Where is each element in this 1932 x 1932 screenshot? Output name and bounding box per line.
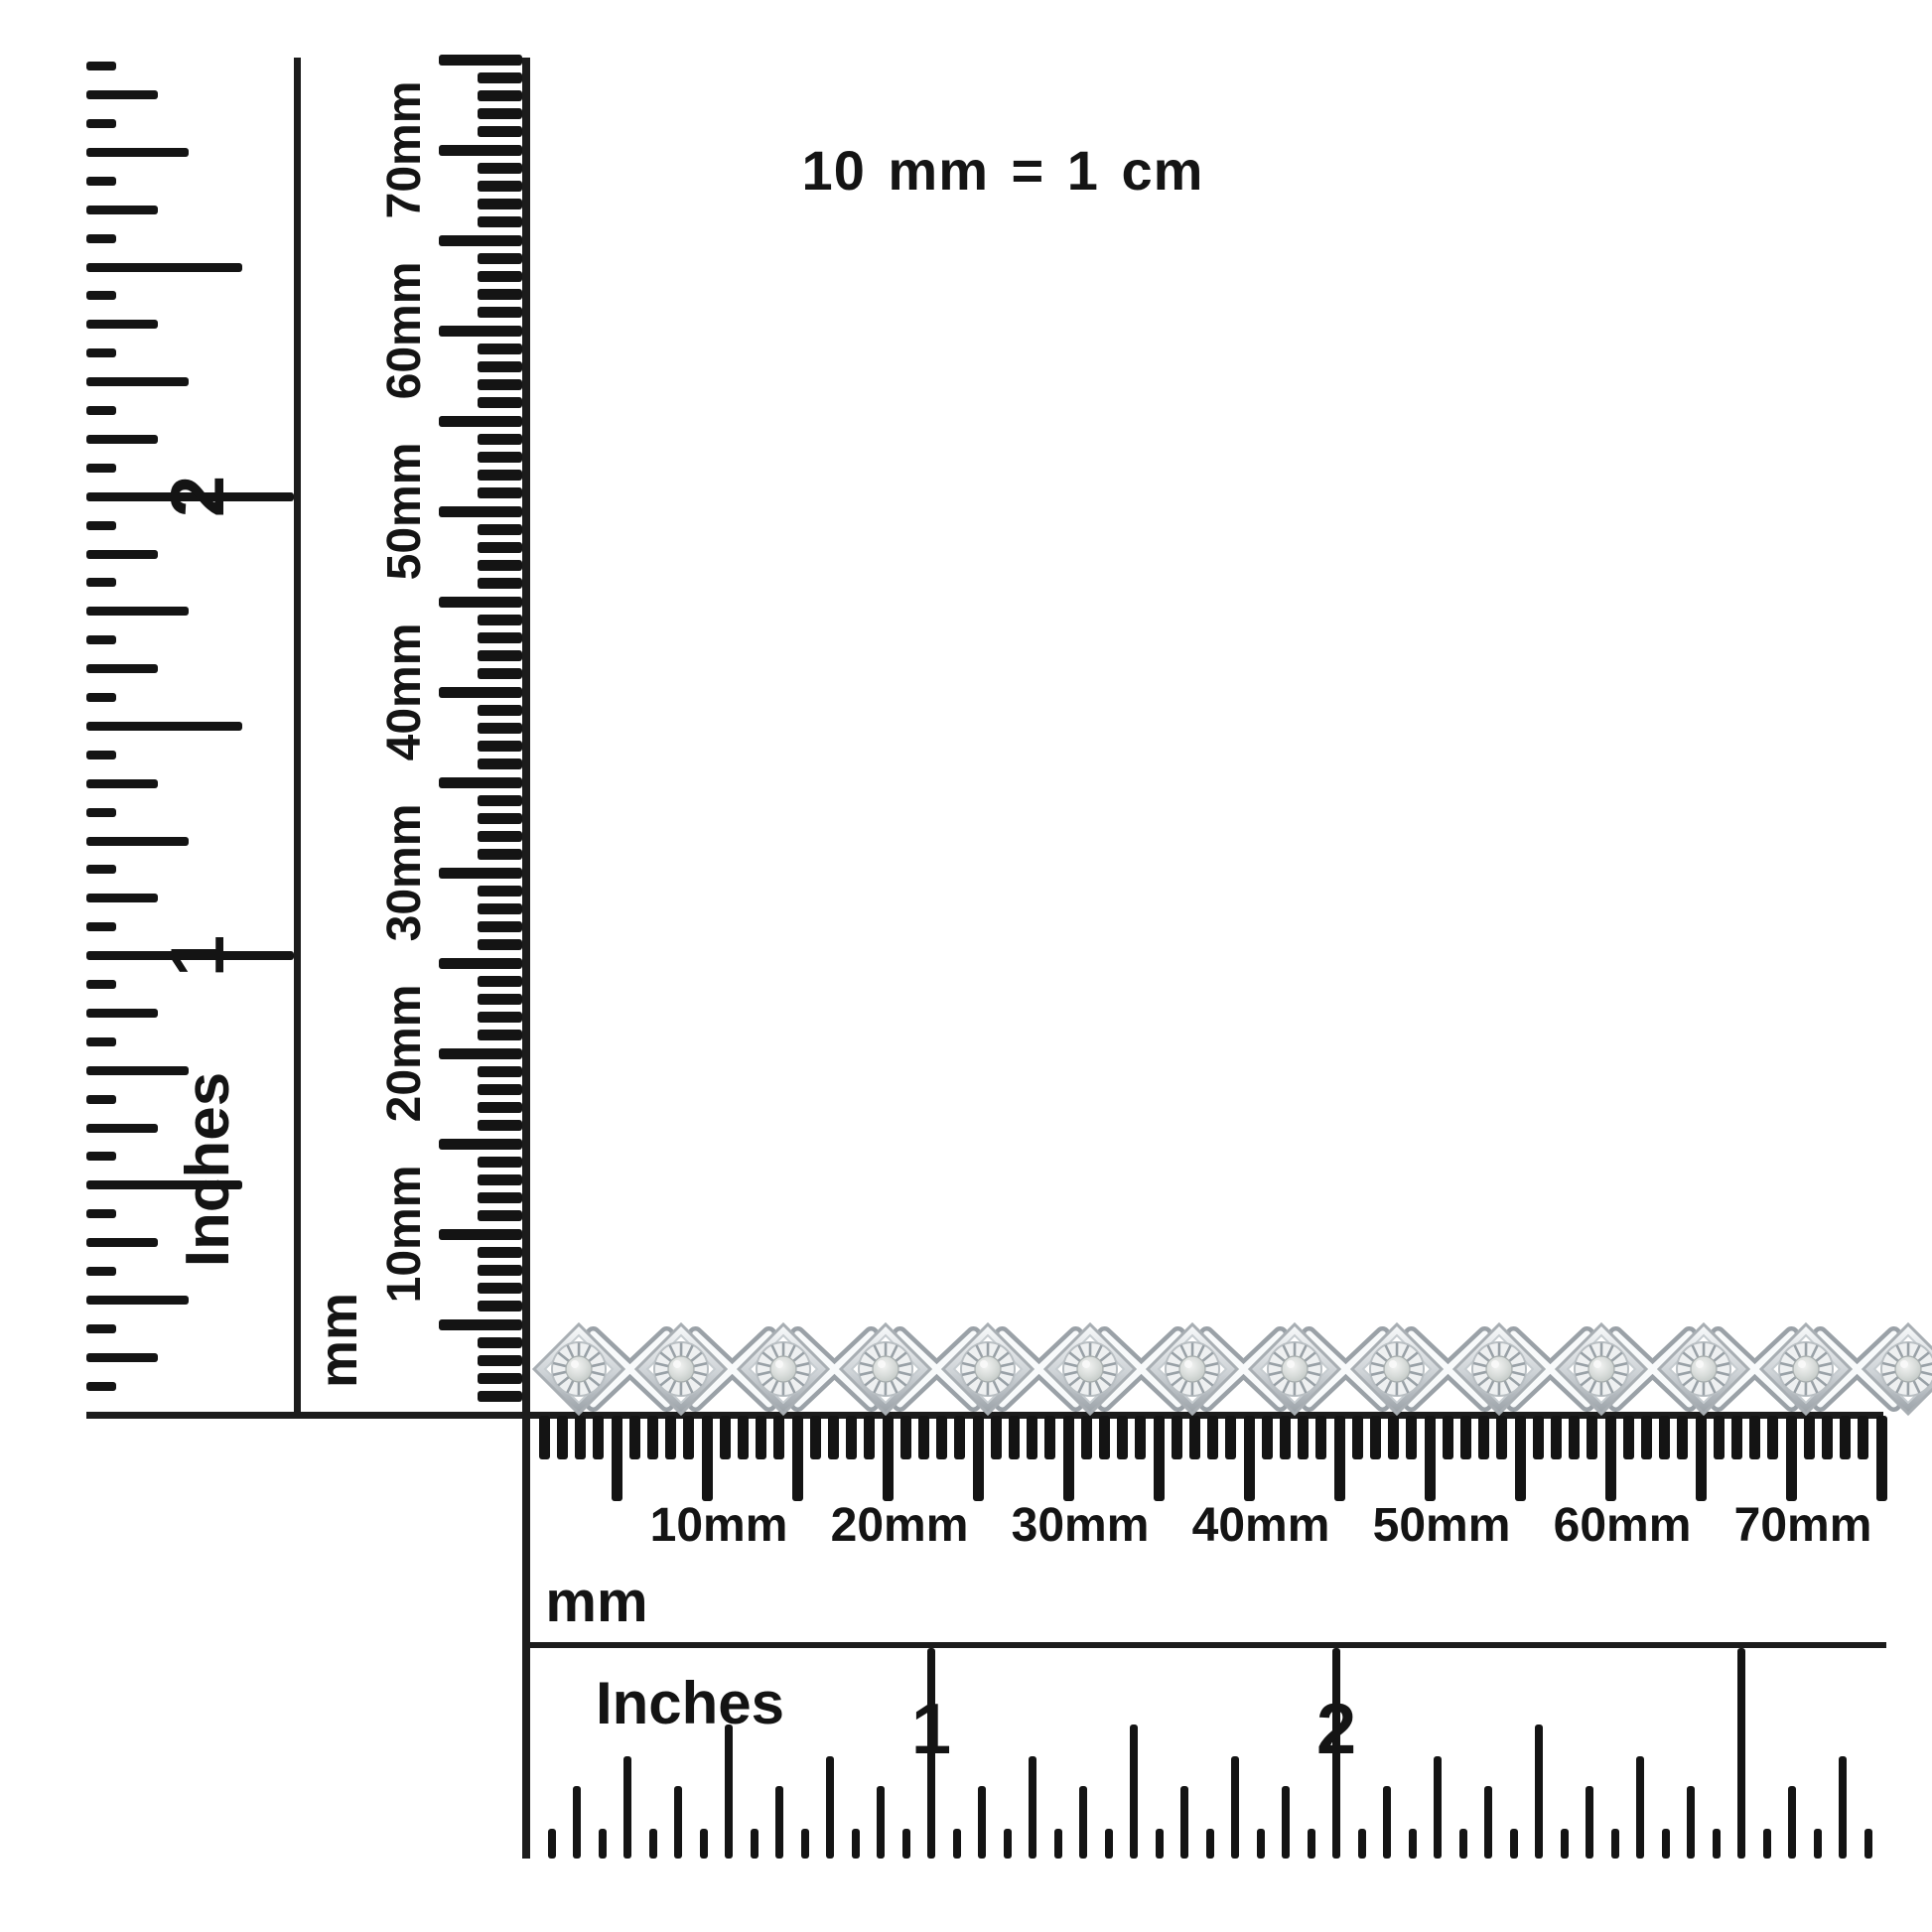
diamond-station [1148, 1324, 1237, 1414]
inch-tick [1459, 1829, 1467, 1859]
diamond-stone [1588, 1356, 1614, 1382]
inch-tick [674, 1786, 682, 1859]
diamond-station [1250, 1324, 1339, 1414]
horizontal-inches-unit-label: Inches [588, 1674, 792, 1733]
inch-tick [1156, 1829, 1164, 1859]
inch-tick [649, 1829, 657, 1859]
product-measurement-image: 10 mm = 1 cm Inches 12 mm 10mm20mm30mm40… [0, 0, 1932, 1932]
inch-tick [1308, 1829, 1315, 1859]
diamond-station [1863, 1324, 1932, 1414]
inch-tick [1231, 1756, 1239, 1859]
inch-tick [1510, 1829, 1518, 1859]
inch-tick [1409, 1829, 1417, 1859]
horizontal-inches-ruler-border [522, 1642, 1886, 1648]
inch-tick [1383, 1786, 1391, 1859]
inch-tick [1864, 1829, 1872, 1859]
inch-tick [1763, 1829, 1771, 1859]
inch-tick [751, 1829, 759, 1859]
inch-tick [573, 1786, 581, 1859]
inch-tick [1788, 1786, 1796, 1859]
diamond-station [1454, 1324, 1544, 1414]
diamond-station [739, 1324, 828, 1414]
inch-tick [1257, 1829, 1265, 1859]
inch-tick [1561, 1829, 1569, 1859]
inch-tick [725, 1725, 733, 1859]
inch-tick [978, 1786, 986, 1859]
inch-tick [1737, 1648, 1745, 1859]
inch-tick [1814, 1829, 1822, 1859]
inch-tick [1611, 1829, 1619, 1859]
inch-tick [1535, 1725, 1543, 1859]
inch-tick [700, 1829, 708, 1859]
diamond-stone [1384, 1356, 1410, 1382]
inch-tick [1687, 1786, 1695, 1859]
inch-tick [1105, 1829, 1113, 1859]
diamond-stone [1077, 1356, 1103, 1382]
horizontal-inch-numeral: 1 [911, 1694, 951, 1765]
inch-tick [1713, 1829, 1721, 1859]
inch-tick [1282, 1786, 1290, 1859]
diamond-stone [668, 1356, 694, 1382]
horizontal-inch-numeral: 2 [1316, 1694, 1356, 1765]
diamond-stone [1793, 1356, 1819, 1382]
inch-tick [1054, 1829, 1062, 1859]
inch-tick [902, 1829, 910, 1859]
inch-tick [548, 1829, 556, 1859]
diamond-station [1045, 1324, 1135, 1414]
inch-tick [1180, 1786, 1188, 1859]
diamond-stone [1691, 1356, 1717, 1382]
inch-tick [1434, 1756, 1442, 1859]
inch-tick [1206, 1829, 1214, 1859]
diamond-stone [1486, 1356, 1512, 1382]
diamond-stone [566, 1356, 592, 1382]
inch-tick [775, 1786, 783, 1859]
diamond-stone [1895, 1356, 1921, 1382]
inch-tick [801, 1829, 809, 1859]
inch-tick [826, 1756, 834, 1859]
diamond-station [636, 1324, 726, 1414]
inch-tick [877, 1786, 885, 1859]
diamond-station [1761, 1324, 1851, 1414]
diamond-station [943, 1324, 1033, 1414]
inch-tick [623, 1756, 631, 1859]
diamond-station [1659, 1324, 1748, 1414]
inch-tick [1029, 1756, 1036, 1859]
horizontal-inches-ruler: Inches 12 [0, 0, 1932, 1932]
diamond-stone [1179, 1356, 1205, 1382]
inch-tick [953, 1829, 961, 1859]
inch-tick [852, 1829, 860, 1859]
diamond-stone [975, 1356, 1001, 1382]
diamond-stone [873, 1356, 898, 1382]
diamond-station [1352, 1324, 1442, 1414]
diamond-station [534, 1324, 623, 1414]
inch-tick [1662, 1829, 1670, 1859]
inch-tick [1839, 1756, 1847, 1859]
inch-tick [1358, 1829, 1366, 1859]
inch-tick [1636, 1756, 1644, 1859]
diamond-x-link-bracelet [526, 1321, 1932, 1418]
inch-tick [599, 1829, 607, 1859]
inch-tick [1586, 1786, 1593, 1859]
inch-tick [1484, 1786, 1492, 1859]
diamond-stone [770, 1356, 796, 1382]
inch-tick [1130, 1725, 1138, 1859]
inch-tick [1079, 1786, 1087, 1859]
diamond-station [1557, 1324, 1646, 1414]
diamond-stone [1282, 1356, 1308, 1382]
diamond-station [841, 1324, 930, 1414]
inch-tick [1004, 1829, 1012, 1859]
